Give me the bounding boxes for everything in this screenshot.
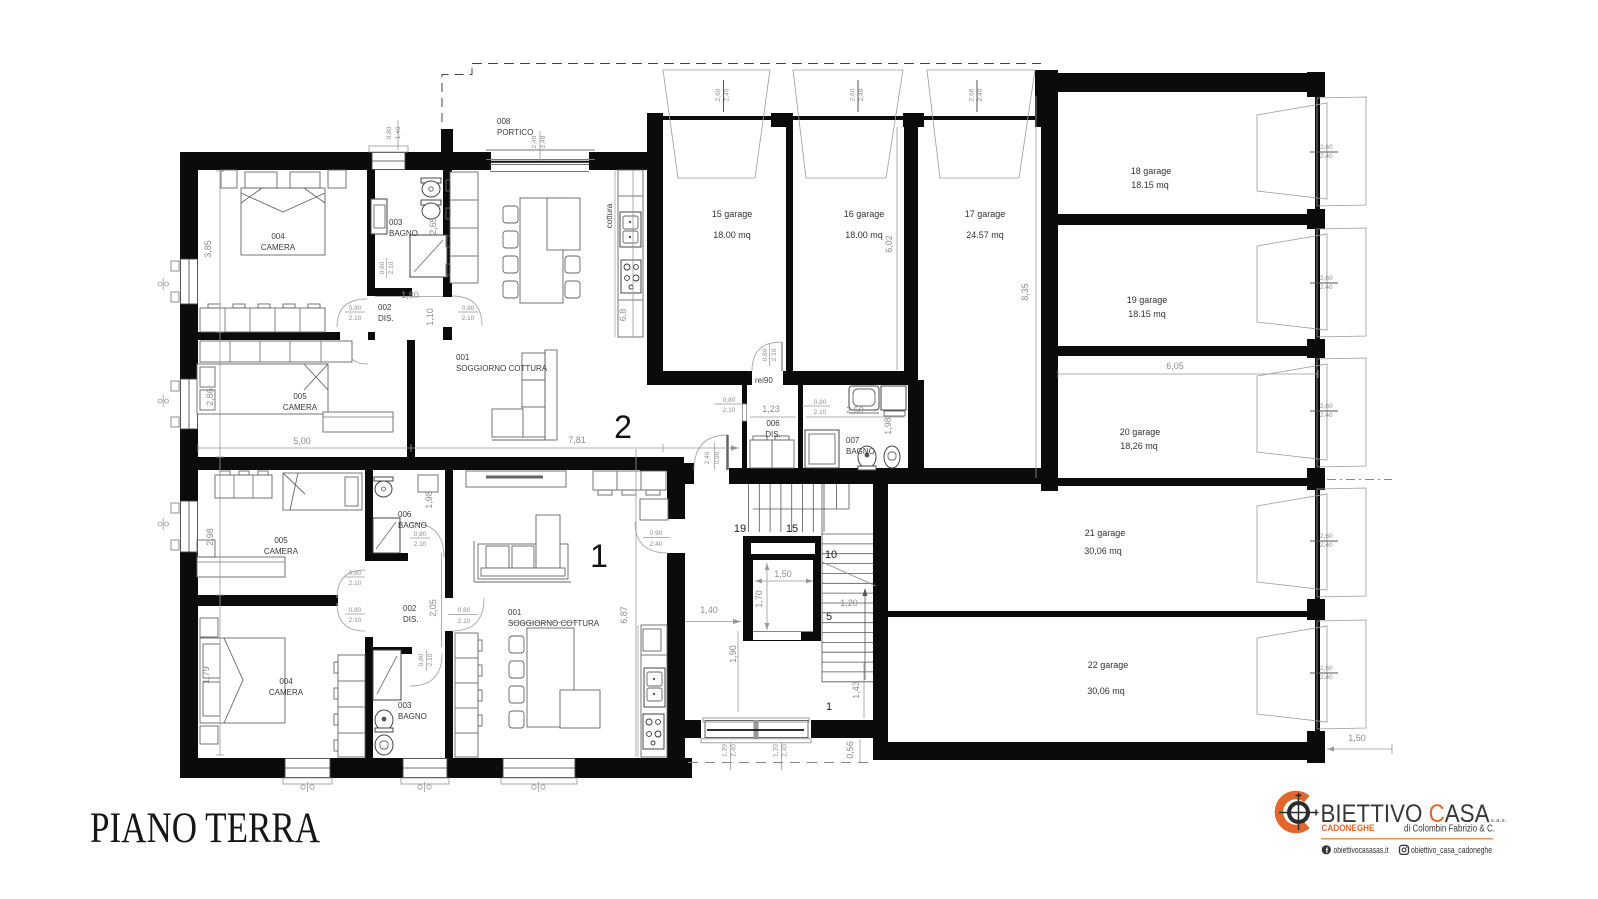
svg-text:2,40: 2,40 <box>782 744 789 757</box>
svg-text:1,90: 1,90 <box>728 645 738 663</box>
svg-text:di Colombin Fabrizio & C.: di Colombin Fabrizio & C. <box>1404 824 1495 835</box>
svg-text:0,80: 0,80 <box>814 399 827 406</box>
svg-text:2,40: 2,40 <box>1320 284 1333 291</box>
svg-text:2,40: 2,40 <box>531 135 538 148</box>
svg-text:PORTICO: PORTICO <box>497 128 533 137</box>
svg-text:PIANO TERRA: PIANO TERRA <box>90 805 320 852</box>
svg-text:2,60: 2,60 <box>1320 403 1333 410</box>
svg-text:obiettivocasasas.it: obiettivocasasas.it <box>1334 845 1389 855</box>
svg-text:cottura: cottura <box>605 203 614 228</box>
svg-text:2,60: 2,60 <box>1320 533 1333 540</box>
svg-text:2,60: 2,60 <box>969 88 976 101</box>
svg-text:005: 005 <box>293 392 307 401</box>
svg-text:18,26 mq: 18,26 mq <box>1120 441 1158 451</box>
svg-text:CADONEGHE: CADONEGHE <box>1322 823 1375 834</box>
svg-text:BAGNO: BAGNO <box>398 521 427 530</box>
svg-text:002: 002 <box>378 303 392 312</box>
svg-text:0,80: 0,80 <box>349 570 362 577</box>
svg-text:SOGGIORNO COTTURA: SOGGIORNO COTTURA <box>508 619 600 628</box>
svg-text:BAGNO: BAGNO <box>846 447 875 456</box>
svg-text:1,40: 1,40 <box>395 126 402 139</box>
svg-text:0,80: 0,80 <box>762 348 769 361</box>
svg-text:2.10: 2.10 <box>349 617 362 624</box>
svg-text:0,80: 0,80 <box>379 261 386 274</box>
svg-text:1,98: 1,98 <box>883 417 893 435</box>
svg-text:003: 003 <box>389 218 403 227</box>
svg-text:19 garage: 19 garage <box>1127 295 1168 305</box>
svg-text:1,20: 1,20 <box>722 744 729 757</box>
svg-text:1,40: 1,40 <box>700 605 718 615</box>
svg-text:1,20: 1,20 <box>773 744 780 757</box>
svg-text:0,80: 0,80 <box>386 126 393 139</box>
svg-text:2.10: 2.10 <box>349 315 362 322</box>
svg-text:18.00 mq: 18.00 mq <box>713 230 751 240</box>
svg-text:2.10: 2.10 <box>458 618 471 625</box>
svg-text:DIS.: DIS. <box>403 615 419 624</box>
svg-text:2,40: 2,40 <box>540 135 547 148</box>
svg-text:1,70: 1,70 <box>754 590 764 608</box>
svg-text:2,40: 2,40 <box>1320 674 1333 681</box>
svg-text:1,43: 1,43 <box>851 681 861 699</box>
svg-text:30,06 mq: 30,06 mq <box>1087 686 1125 696</box>
svg-text:1,10: 1,10 <box>425 308 435 326</box>
svg-text:22 garage: 22 garage <box>1088 660 1129 670</box>
svg-text:1: 1 <box>826 701 832 713</box>
svg-text:2,40: 2,40 <box>858 88 865 101</box>
svg-text:2.10: 2.10 <box>723 407 736 414</box>
svg-text:2,05: 2,05 <box>428 599 438 617</box>
svg-text:CAMERA: CAMERA <box>264 547 299 556</box>
svg-text:005: 005 <box>274 536 288 545</box>
svg-text:1,20: 1,20 <box>840 598 858 608</box>
svg-text:6,05: 6,05 <box>1166 361 1184 371</box>
svg-text:BAGNO: BAGNO <box>398 712 427 721</box>
svg-text:20 garage: 20 garage <box>1120 427 1161 437</box>
svg-text:obiettivo_casa_cadoneghe: obiettivo_casa_cadoneghe <box>1411 845 1492 855</box>
svg-text:2.10: 2.10 <box>349 580 362 587</box>
svg-text:2,40: 2,40 <box>704 451 711 464</box>
svg-text:18.15 mq: 18.15 mq <box>1131 180 1169 190</box>
svg-text:CAMERA: CAMERA <box>283 403 318 412</box>
svg-text:15 garage: 15 garage <box>712 209 753 219</box>
svg-text:2: 2 <box>614 409 632 445</box>
svg-text:24.57 mq: 24.57 mq <box>966 230 1004 240</box>
svg-text:21 garage: 21 garage <box>1085 528 1126 538</box>
svg-text:15: 15 <box>786 523 798 535</box>
svg-text:2,65: 2,65 <box>428 217 438 235</box>
svg-text:DIS.: DIS. <box>378 314 394 323</box>
svg-text:002: 002 <box>403 604 417 613</box>
svg-text:2,60: 2,60 <box>1320 275 1333 282</box>
svg-text:1,50: 1,50 <box>774 569 792 579</box>
svg-text:0,80: 0,80 <box>462 305 475 312</box>
svg-text:2.40: 2.40 <box>650 541 663 548</box>
svg-text:2,40: 2,40 <box>1320 542 1333 549</box>
svg-text:CAMERA: CAMERA <box>261 243 296 252</box>
svg-text:6,87: 6,87 <box>619 606 629 624</box>
svg-text:0,80: 0,80 <box>458 607 471 614</box>
svg-text:18.15 mq: 18.15 mq <box>1128 309 1166 319</box>
svg-text:2.10: 2.10 <box>388 261 395 274</box>
svg-text:18 garage: 18 garage <box>1131 166 1172 176</box>
svg-text:006: 006 <box>398 510 412 519</box>
svg-text:5,00: 5,00 <box>293 436 311 446</box>
svg-text:SOGGIORNO COTTURA: SOGGIORNO COTTURA <box>456 364 548 373</box>
svg-text:2.10: 2.10 <box>462 315 475 322</box>
svg-text:8,35: 8,35 <box>1020 283 1030 301</box>
svg-text:2,60: 2,60 <box>1320 144 1333 151</box>
svg-text:001: 001 <box>456 353 470 362</box>
svg-text:rei90: rei90 <box>755 376 773 385</box>
svg-text:2,40: 2,40 <box>724 88 731 101</box>
svg-text:2,40: 2,40 <box>1320 412 1333 419</box>
svg-text:0,90: 0,90 <box>714 451 721 464</box>
svg-text:2.10: 2.10 <box>427 653 434 666</box>
svg-text:2.10: 2.10 <box>814 409 827 416</box>
svg-text:2,40: 2,40 <box>731 744 738 757</box>
svg-text:0,80: 0,80 <box>414 531 427 538</box>
svg-text:007: 007 <box>846 436 860 445</box>
svg-text:2,60: 2,60 <box>1320 665 1333 672</box>
svg-text:7,81: 7,81 <box>568 435 586 445</box>
svg-text:17 garage: 17 garage <box>965 209 1006 219</box>
svg-text:2,60: 2,60 <box>715 88 722 101</box>
svg-text:18.00 mq: 18.00 mq <box>845 230 883 240</box>
svg-text:BAGNO: BAGNO <box>389 229 418 238</box>
svg-text:6,02: 6,02 <box>884 235 894 253</box>
svg-text:003: 003 <box>398 701 412 710</box>
svg-text:DIS.: DIS. <box>765 430 781 439</box>
svg-text:5: 5 <box>826 611 832 623</box>
svg-text:10: 10 <box>825 549 837 561</box>
svg-text:1,79: 1,79 <box>201 666 211 684</box>
svg-text:2,40: 2,40 <box>1320 153 1333 160</box>
svg-text:008: 008 <box>497 117 511 126</box>
svg-text:1: 1 <box>590 538 608 574</box>
svg-text:CAMERA: CAMERA <box>269 688 304 697</box>
svg-text:0,80: 0,80 <box>349 305 362 312</box>
svg-text:2,98: 2,98 <box>205 528 215 546</box>
svg-text:0.90: 0.90 <box>650 530 663 537</box>
svg-text:30,06 mq: 30,06 mq <box>1084 546 1122 556</box>
svg-text:3,85: 3,85 <box>203 240 213 258</box>
svg-text:001: 001 <box>508 608 522 617</box>
svg-text:2,86: 2,86 <box>205 388 215 406</box>
svg-text:0,80: 0,80 <box>418 653 425 666</box>
svg-text:1,50: 1,50 <box>1348 733 1366 743</box>
svg-text:004: 004 <box>271 232 285 241</box>
svg-text:19: 19 <box>734 523 746 535</box>
svg-text:16 garage: 16 garage <box>844 209 885 219</box>
svg-text:0,56: 0,56 <box>845 741 855 759</box>
svg-text:2,40: 2,40 <box>977 88 984 101</box>
svg-text:2.10: 2.10 <box>771 348 778 361</box>
svg-text:6,8: 6,8 <box>618 309 628 322</box>
svg-text:0,80: 0,80 <box>723 397 736 404</box>
svg-text:1,80: 1,80 <box>401 290 419 300</box>
svg-text:0,80: 0,80 <box>349 607 362 614</box>
svg-text:1,98: 1,98 <box>424 491 434 509</box>
svg-text:004: 004 <box>279 677 293 686</box>
svg-text:006: 006 <box>766 419 780 428</box>
svg-text:2,50: 2,50 <box>846 405 864 415</box>
svg-text:1,23: 1,23 <box>762 404 780 414</box>
svg-text:2.10: 2.10 <box>414 541 427 548</box>
svg-text:2,60: 2,60 <box>850 88 857 101</box>
